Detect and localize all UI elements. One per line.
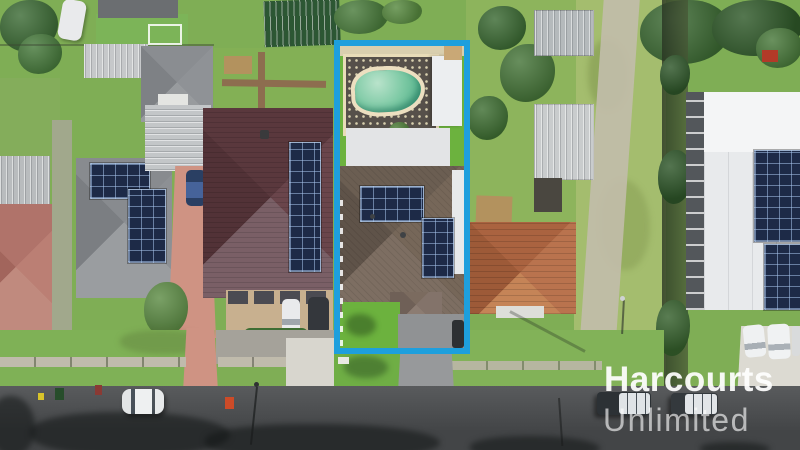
footpath [452,361,602,370]
solar-array [754,150,800,242]
wheelie-bin-red [95,385,102,395]
shed-roof [224,56,252,74]
wheelie-bin-yellow [38,393,44,400]
driveway-salmon-lower [183,328,218,392]
solar-array [289,142,321,272]
lamp-head [620,296,625,301]
parked-car-white [742,324,766,358]
patio-roof [346,128,450,170]
caravan [57,0,88,42]
solar-array [764,244,800,310]
shed-roof-tan [444,46,462,60]
tree-canopy [18,34,62,74]
side-path [52,120,72,342]
parked-car-white [767,323,791,359]
parked-car-partial [792,326,800,356]
watermark-division: Unlimited [603,404,750,436]
house-roof-dark [98,0,178,18]
tree-canopy [382,0,422,24]
wheelie-bin-green [55,388,64,400]
aerial-photo: Harcourts Unlimited [0,0,800,450]
dirt-path [258,52,265,114]
garage-roof [432,56,462,126]
tree-shadow [344,356,388,378]
property-boundary [334,40,470,354]
parked-car-dark [452,320,464,348]
shed-roof-green [263,0,341,47]
shed-roof [534,10,594,56]
mailbox [338,357,349,364]
trailer [762,50,778,62]
parked-car-dark [308,297,329,334]
roof-vent [400,232,406,238]
wheelie-bin-orange [225,397,234,409]
watermark-brand: Harcourts [604,362,774,397]
driveway-white [286,338,334,390]
tree-canopy [334,0,388,34]
soccer-goal [148,24,182,45]
tree-shadow [346,314,376,336]
fence-posts [340,196,343,346]
footpath [218,357,286,367]
chimney [260,130,269,139]
solar-array [422,218,454,278]
car-on-road-white [122,389,164,414]
solar-array [128,189,166,263]
carport-roof [145,105,211,171]
shed-roof [534,104,594,180]
metal-roof [0,156,50,208]
shed-roof-dark [534,178,562,212]
footpath [0,357,186,367]
house-red-roof [0,204,52,330]
roof-vent [370,214,375,219]
tree-canopy [756,28,800,68]
shed-roof [84,44,148,78]
upper-roof [704,92,800,154]
window-strip [686,92,706,310]
house-terracotta-roof [464,222,576,314]
